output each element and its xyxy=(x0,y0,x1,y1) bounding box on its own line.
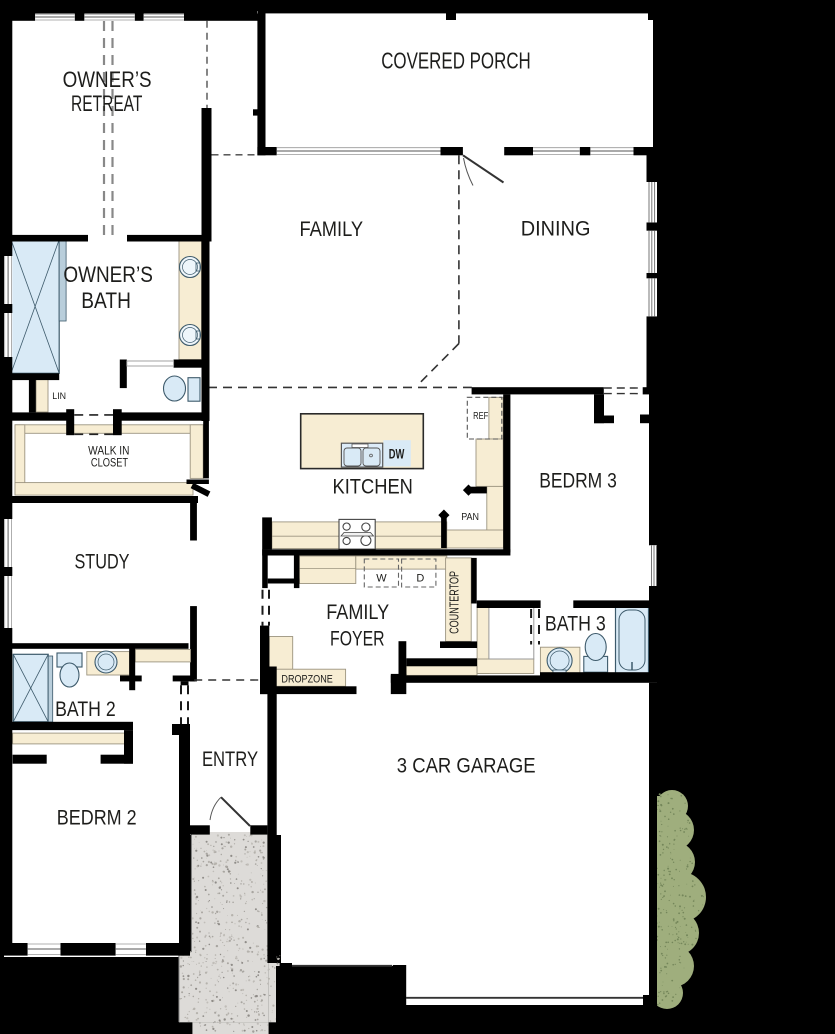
svg-text:KITCHEN: KITCHEN xyxy=(333,476,413,499)
svg-text:BATH 3: BATH 3 xyxy=(545,613,606,636)
svg-text:DROPZONE: DROPZONE xyxy=(281,674,332,686)
svg-text:COVERED PORCH: COVERED PORCH xyxy=(381,48,531,74)
svg-text:REF: REF xyxy=(473,410,488,422)
svg-text:BEDRM 3: BEDRM 3 xyxy=(539,470,617,493)
svg-text:WALK IN: WALK IN xyxy=(88,445,129,457)
svg-text:STUDY: STUDY xyxy=(74,551,129,574)
svg-text:BEDRM 2: BEDRM 2 xyxy=(57,807,137,830)
svg-text:DINING: DINING xyxy=(521,218,591,241)
svg-text:PAN: PAN xyxy=(461,511,479,523)
svg-text:OWNER’S: OWNER’S xyxy=(63,67,152,92)
svg-text:BATH: BATH xyxy=(81,288,131,313)
svg-text:D: D xyxy=(416,573,424,585)
svg-text:BATH 2: BATH 2 xyxy=(55,698,116,721)
svg-text:COUNTERTOP: COUNTERTOP xyxy=(446,571,461,634)
svg-text:FAMILY: FAMILY xyxy=(299,218,363,241)
svg-text:3 CAR GARAGE: 3 CAR GARAGE xyxy=(397,755,536,778)
svg-text:OWNER’S: OWNER’S xyxy=(63,262,153,287)
svg-text:LIN: LIN xyxy=(52,391,66,402)
svg-text:W: W xyxy=(376,573,387,585)
svg-text:ENTRY: ENTRY xyxy=(202,748,258,771)
svg-text:CLOSET: CLOSET xyxy=(91,458,128,470)
svg-text:FOYER: FOYER xyxy=(330,628,385,651)
svg-text:RETREAT: RETREAT xyxy=(71,91,142,116)
svg-text:DW: DW xyxy=(389,446,405,462)
svg-text:FAMILY: FAMILY xyxy=(326,601,389,624)
